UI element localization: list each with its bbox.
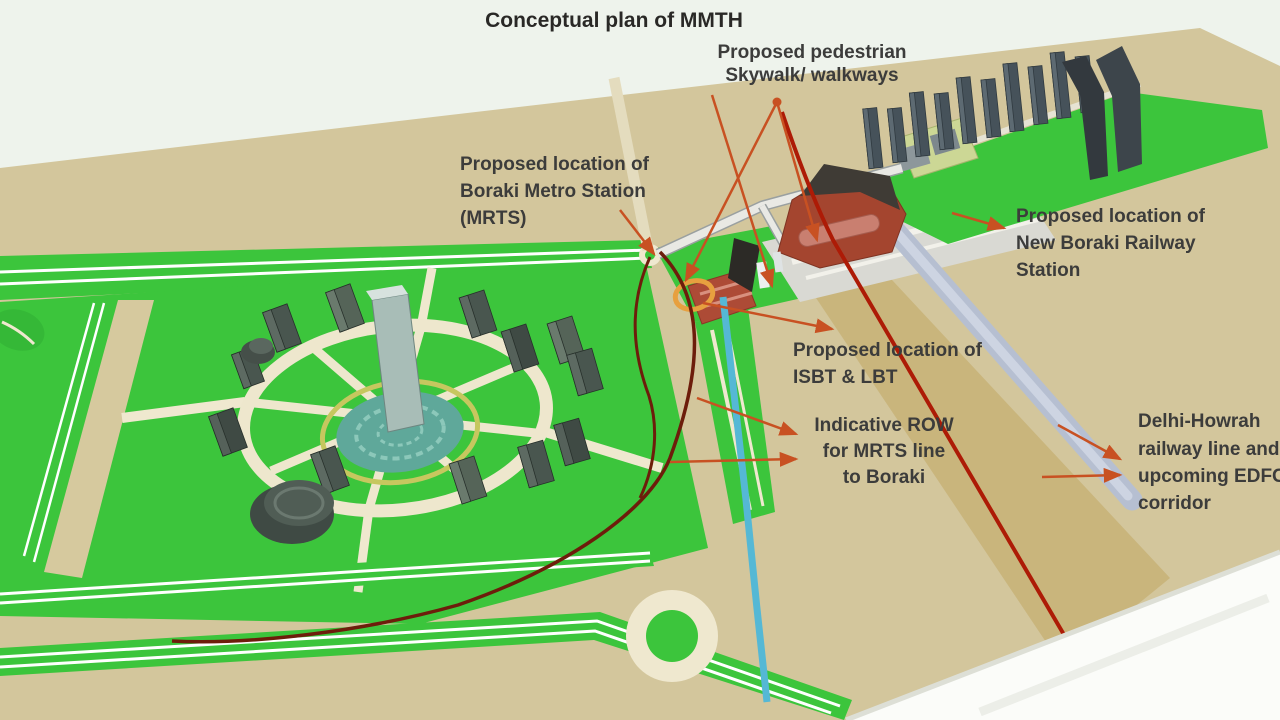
svg-text:New Boraki Railway: New Boraki Railway — [1016, 233, 1196, 254]
svg-text:corridor: corridor — [1138, 493, 1211, 514]
svg-text:Delhi-Howrah: Delhi-Howrah — [1138, 411, 1260, 432]
svg-text:to Boraki: to Boraki — [843, 467, 925, 488]
page-title: Conceptual plan of MMTH — [485, 9, 743, 32]
svg-text:Indicative ROW: Indicative ROW — [814, 415, 953, 436]
svg-text:Proposed location of: Proposed location of — [793, 340, 983, 361]
svg-text:for MRTS line: for MRTS line — [823, 441, 945, 462]
svg-text:Proposed location of: Proposed location of — [1016, 206, 1206, 227]
svg-text:Proposed location of: Proposed location of — [460, 154, 650, 175]
svg-text:ISBT & LBT: ISBT & LBT — [793, 367, 898, 388]
mmth-plan-svg: Conceptual plan of MMTH Proposed pedestr… — [0, 0, 1280, 720]
svg-text:Proposed pedestrian: Proposed pedestrian — [718, 42, 907, 63]
conceptual-plan-canvas: Conceptual plan of MMTH Proposed pedestr… — [0, 0, 1280, 720]
svg-text:upcoming EDFC: upcoming EDFC — [1138, 466, 1280, 487]
svg-text:(MRTS): (MRTS) — [460, 208, 526, 229]
svg-text:Boraki Metro Station: Boraki Metro Station — [460, 181, 646, 202]
svg-text:railway line and: railway line and — [1138, 439, 1280, 460]
svg-text:Skywalk/ walkways: Skywalk/ walkways — [725, 65, 898, 86]
svg-text:Station: Station — [1016, 260, 1080, 281]
